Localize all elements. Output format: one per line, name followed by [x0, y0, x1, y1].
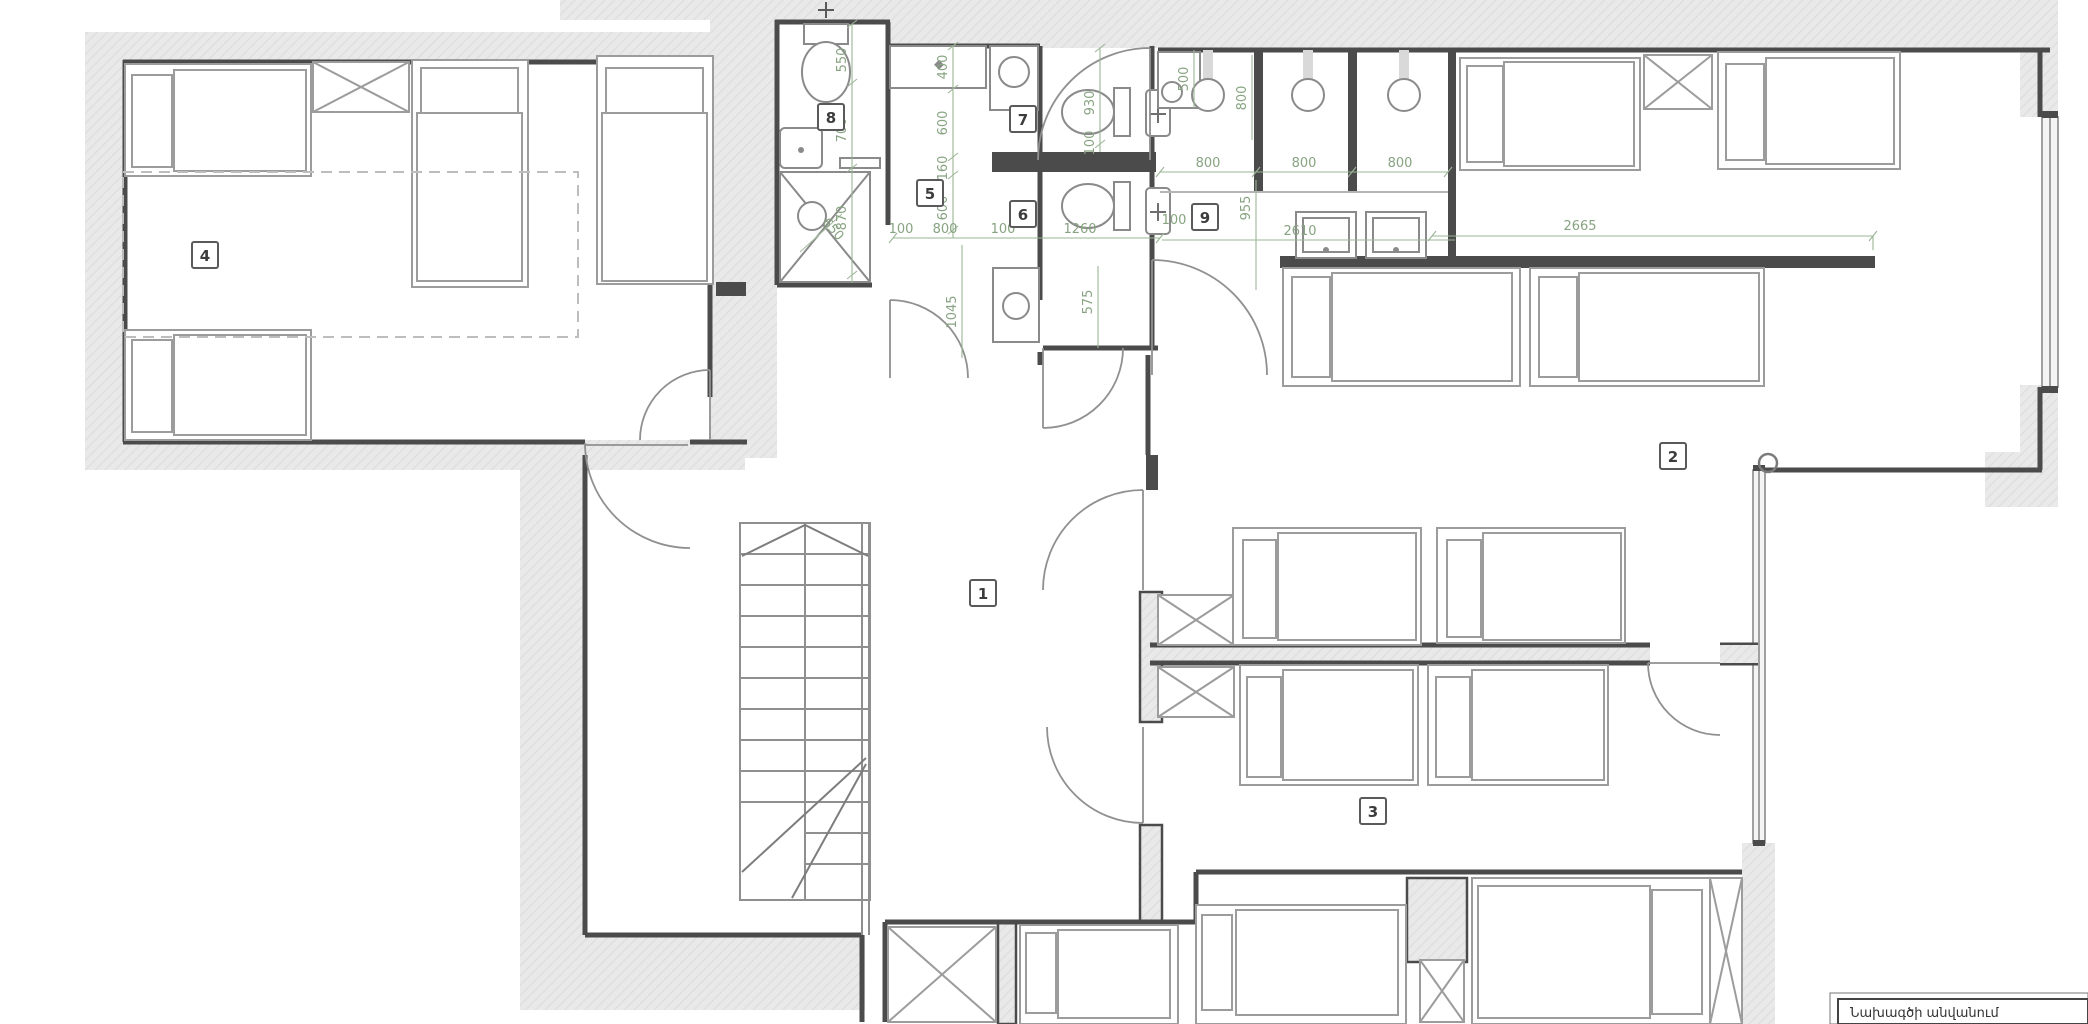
bathroom-8-fixtures [780, 2, 880, 282]
room-tag-9: 9 [1192, 204, 1218, 230]
wardrobe-symbol [313, 62, 409, 112]
dim-label: 800 [1196, 156, 1221, 171]
dim-label: 100 [889, 222, 914, 237]
toilet-tank [1114, 182, 1130, 230]
floor-plan-screenshot: 400 600 160 600 100 800 100 1260 550 700… [0, 0, 2088, 1024]
wardrobe-symbol [1420, 960, 1464, 1022]
svg-text:2: 2 [1668, 448, 1678, 466]
door-arc [1047, 727, 1143, 823]
floor-plan-drawing: 400 600 160 600 100 800 100 1260 550 700… [0, 0, 2088, 1024]
sink [1366, 212, 1426, 258]
door-arc [640, 370, 710, 440]
svg-text:3: 3 [1368, 803, 1378, 821]
door-arc [1043, 348, 1123, 428]
svg-text:6: 6 [1018, 206, 1028, 224]
dim-label: 1045 [945, 295, 960, 328]
dim-label: 400 [936, 55, 951, 80]
wardrobe-symbol [888, 927, 996, 1022]
dim-label: 800 [1292, 156, 1317, 171]
shelf [840, 158, 880, 168]
dim-label: 800 [933, 222, 958, 237]
svg-text:4: 4 [200, 247, 210, 265]
svg-text:7: 7 [1018, 111, 1028, 129]
staircase [740, 523, 870, 935]
svg-text:1: 1 [978, 585, 988, 603]
room-tag-7: 7 [1010, 106, 1036, 132]
shower-head [1388, 50, 1420, 111]
shower-head [1292, 50, 1324, 111]
room-tag-4: 4 [192, 242, 218, 268]
toilet-tank [804, 24, 848, 44]
dim-label: 800 [1235, 86, 1250, 111]
dim-label: 930 [1083, 91, 1098, 116]
room-tag-3: 3 [1360, 798, 1386, 824]
wardrobe-symbol [1710, 878, 1742, 1024]
dim-label: 2610 [1283, 224, 1316, 239]
dim-label: 500 [1177, 67, 1192, 92]
wardrobe-symbol [1158, 595, 1234, 645]
title-block: Նախագծի անվանում [1830, 993, 2088, 1024]
dim-label: 550 [835, 48, 850, 73]
room-tag-6: 6 [1010, 201, 1036, 227]
shower-basin [993, 268, 1039, 342]
wardrobe-symbol [1644, 55, 1712, 109]
room-tag-1: 1 [970, 580, 996, 606]
toilet-tank [1114, 88, 1130, 136]
door-arc [1043, 490, 1143, 590]
dim-label: 100 [1083, 131, 1098, 156]
dim-label: 1260 [1063, 222, 1096, 237]
dim-label: 800 [1388, 156, 1413, 171]
room-tag-2: 2 [1660, 443, 1686, 469]
dim-label: 955 [1239, 196, 1254, 221]
dim-label: 100 [1162, 213, 1187, 228]
svg-text:8: 8 [826, 109, 836, 127]
room-tag-8: 8 [818, 104, 844, 130]
wardrobe-symbol [1158, 667, 1234, 717]
room-2-furniture [1158, 52, 1900, 645]
dim-label: 160 [936, 156, 951, 181]
washing-machine [990, 46, 1038, 110]
door-arc [1648, 663, 1720, 735]
title-block-label: Նախագծի անվանում [1850, 1006, 1999, 1021]
door-arc [1152, 260, 1267, 375]
room-tag-5: 5 [917, 180, 943, 206]
dim-label: 600 [936, 111, 951, 136]
svg-text:9: 9 [1200, 209, 1210, 227]
svg-text:5: 5 [925, 185, 935, 203]
dim-label: 575 [1081, 290, 1096, 315]
dim-label: 2665 [1563, 219, 1596, 234]
